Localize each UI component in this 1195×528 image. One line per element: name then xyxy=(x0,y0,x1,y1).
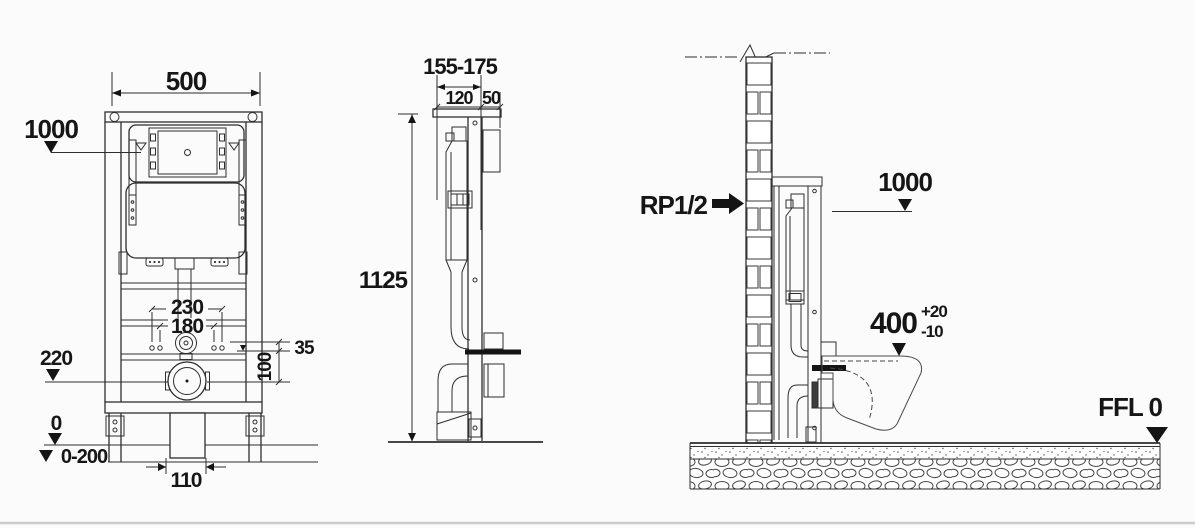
supply-arrow-shaft xyxy=(712,199,729,208)
dim-outlet-height-220: 220 xyxy=(40,347,168,382)
dim-height-1125: 1125 xyxy=(359,114,418,442)
dim-0-label: 0 xyxy=(51,412,62,435)
brick-wall xyxy=(746,57,772,443)
flush-outlet-spigot xyxy=(484,333,503,349)
installation-diagram: 500 1000 230 180 xyxy=(0,0,1195,528)
dim-35-100: 35 100 xyxy=(207,338,315,385)
dim-1000-label: 1000 xyxy=(24,114,78,144)
tol-plus-label: +20 xyxy=(921,302,947,321)
installation-view: RP1/2 xyxy=(640,45,1168,489)
corner-screw-right xyxy=(248,113,257,122)
dim-floor-0: 0 xyxy=(48,412,62,445)
dim-1125-label: 1125 xyxy=(359,267,408,294)
tol-minus-label: -10 xyxy=(921,322,943,341)
drain-bend-side xyxy=(437,364,504,440)
dim-180-label: 180 xyxy=(171,315,203,338)
dim-flush-height-1000: 1000 xyxy=(24,114,141,153)
dim-220-label: 220 xyxy=(40,347,72,370)
drain-install xyxy=(788,379,833,438)
dim-width-500: 500 xyxy=(112,66,260,106)
rail-clip-left xyxy=(119,252,127,274)
dim-100-label: 100 xyxy=(255,352,276,381)
dim-adjust-0-200: 0-200 xyxy=(39,446,108,468)
bowl-inlet-spigot xyxy=(821,342,836,356)
dim-0-200-label: 0-200 xyxy=(61,446,108,468)
dim-35-label: 35 xyxy=(294,338,315,359)
drain-spigot xyxy=(484,364,504,397)
supply-rp12-label: RP1/2 xyxy=(640,190,708,220)
dim-110-label: 110 xyxy=(171,469,202,492)
drain-outlet xyxy=(166,362,210,458)
front-view: 500 1000 230 180 xyxy=(24,66,318,492)
floor-rubble xyxy=(690,459,1160,489)
water-supply-callout: RP1/2 xyxy=(640,190,744,220)
bowl-fixing-bar xyxy=(812,365,846,371)
side-view: 155-175 120 50 xyxy=(359,54,543,442)
dim-50-label: 50 xyxy=(482,88,501,108)
dim-bolts-180: 180 xyxy=(157,315,217,342)
flush-plate-button xyxy=(185,150,191,156)
corner-screw-left xyxy=(110,113,119,122)
flush-plate-frame xyxy=(149,128,226,177)
bowl-bracket-bar xyxy=(465,350,521,355)
level-mark-right xyxy=(229,143,239,150)
dim-bowl-height-400: 400 +20 -10 xyxy=(870,302,947,356)
dim-install-1000: 1000 xyxy=(832,167,932,212)
cistern-install xyxy=(786,194,836,357)
panel-bolts xyxy=(151,134,225,169)
dim-120-label: 120 xyxy=(445,88,473,108)
drain-gasket xyxy=(812,382,818,408)
wall-fixing-block xyxy=(483,130,500,172)
ffl-0-label: FFL 0 xyxy=(1098,392,1162,422)
dim-1000-install-label: 1000 xyxy=(878,167,932,197)
drain-duct-box xyxy=(170,413,205,458)
top-panel xyxy=(772,177,822,186)
access-panel xyxy=(129,125,244,182)
dim-155-175-label: 155-175 xyxy=(423,54,498,79)
dim-500-label: 500 xyxy=(166,66,207,96)
drain-connector xyxy=(818,379,833,408)
finished-floor-callout: FFL 0 xyxy=(1098,392,1168,443)
cistern-front xyxy=(126,183,245,266)
flush-plate xyxy=(158,131,217,174)
supply-arrow-icon xyxy=(729,193,744,214)
dim-400-label: 400 xyxy=(870,307,917,340)
flush-bend-side xyxy=(451,272,503,349)
dim-outlet-width-110: 110 xyxy=(146,458,226,492)
level-mark-left xyxy=(136,143,146,150)
floor-slab xyxy=(690,443,1160,489)
floor-screed xyxy=(690,447,1160,460)
